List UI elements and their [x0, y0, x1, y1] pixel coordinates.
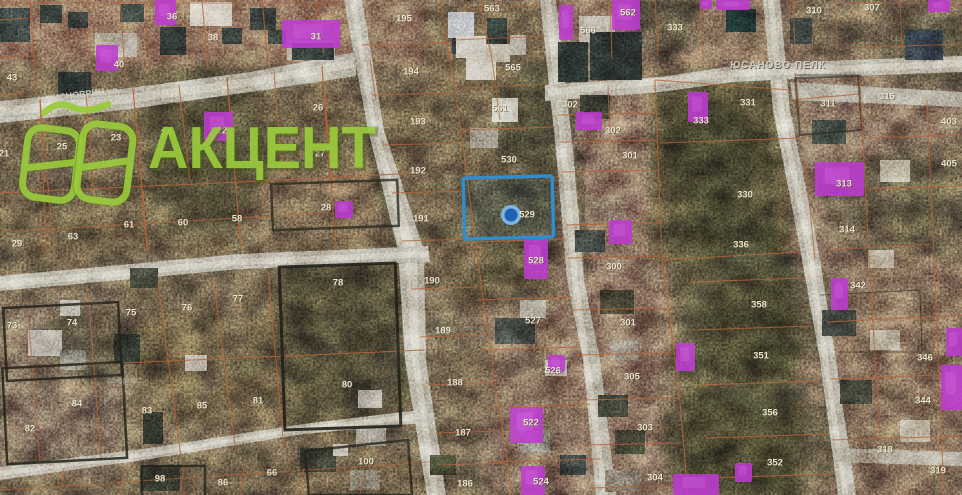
svg-text:333: 333	[693, 116, 709, 127]
svg-text:310: 310	[806, 6, 822, 17]
svg-text:76: 76	[182, 303, 193, 314]
svg-text:526: 526	[545, 366, 561, 377]
svg-text:305: 305	[624, 372, 641, 383]
svg-text:529: 529	[519, 210, 535, 221]
svg-text:315: 315	[879, 92, 896, 103]
svg-text:АКЦЕНТ: АКЦЕНТ	[148, 116, 376, 182]
svg-text:36: 36	[167, 12, 178, 23]
svg-text:524: 524	[533, 477, 550, 488]
svg-text:194: 194	[403, 67, 420, 78]
svg-text:31: 31	[311, 32, 322, 43]
svg-text:319: 319	[930, 466, 946, 477]
svg-text:565: 565	[505, 63, 522, 74]
svg-text:301: 301	[622, 151, 639, 162]
svg-text:80: 80	[342, 380, 353, 391]
svg-text:98: 98	[155, 474, 166, 485]
svg-text:346: 346	[917, 353, 933, 364]
svg-text:78: 78	[333, 278, 344, 289]
svg-text:23: 23	[111, 133, 122, 144]
svg-text:562: 562	[620, 8, 636, 19]
svg-text:331: 331	[740, 98, 757, 109]
svg-text:60: 60	[178, 218, 189, 229]
svg-text:58: 58	[232, 214, 243, 225]
svg-text:66: 66	[267, 468, 278, 479]
svg-text:303: 303	[637, 423, 653, 434]
svg-text:527: 527	[525, 316, 541, 327]
svg-text:84: 84	[72, 399, 83, 410]
svg-text:192: 192	[410, 166, 426, 177]
svg-text:344: 344	[915, 396, 932, 407]
svg-text:330: 330	[737, 190, 753, 201]
svg-text:191: 191	[413, 214, 430, 225]
svg-text:563: 563	[484, 4, 500, 15]
svg-text:302: 302	[605, 126, 621, 137]
svg-text:356: 356	[762, 408, 778, 419]
svg-text:86: 86	[218, 478, 229, 489]
svg-text:302: 302	[562, 100, 578, 111]
svg-text:26: 26	[313, 103, 324, 114]
svg-text:352: 352	[767, 458, 783, 469]
svg-text:38: 38	[208, 33, 219, 44]
svg-text:530: 530	[501, 155, 517, 166]
svg-text:28: 28	[321, 203, 332, 214]
svg-text:21: 21	[0, 149, 10, 160]
svg-text:403: 403	[941, 117, 957, 128]
svg-text:561: 561	[492, 104, 509, 115]
svg-text:195: 195	[396, 14, 413, 25]
svg-text:40: 40	[114, 60, 125, 71]
svg-text:190: 190	[424, 276, 440, 287]
svg-text:351: 351	[753, 351, 770, 362]
svg-text:73: 73	[7, 321, 18, 332]
svg-text:187: 187	[455, 428, 471, 439]
svg-text:336: 336	[733, 240, 749, 251]
svg-text:358: 358	[751, 300, 767, 311]
svg-text:342: 342	[850, 281, 866, 292]
svg-text:29: 29	[12, 239, 23, 250]
svg-text:193: 193	[410, 117, 426, 128]
svg-text:304: 304	[647, 473, 664, 484]
svg-text:528: 528	[528, 256, 544, 267]
svg-text:318: 318	[877, 445, 893, 456]
svg-text:61: 61	[124, 220, 135, 231]
svg-text:301: 301	[620, 318, 637, 329]
svg-text:186: 186	[457, 479, 473, 490]
svg-text:43: 43	[7, 73, 18, 84]
svg-text:ЮСАНОВО ПЕЛК: ЮСАНОВО ПЕЛК	[730, 60, 826, 71]
svg-text:82: 82	[25, 424, 36, 435]
svg-text:314: 314	[839, 225, 856, 236]
svg-text:63: 63	[68, 232, 79, 243]
svg-text:333: 333	[667, 23, 683, 34]
svg-text:566: 566	[580, 26, 596, 37]
svg-text:300: 300	[606, 262, 622, 273]
svg-text:307: 307	[864, 3, 880, 14]
svg-text:25: 25	[57, 142, 68, 153]
svg-text:81: 81	[253, 396, 264, 407]
svg-text:188: 188	[447, 378, 463, 389]
svg-text:311: 311	[820, 99, 836, 110]
svg-text:75: 75	[126, 308, 137, 319]
svg-text:405: 405	[941, 159, 958, 170]
svg-text:313: 313	[836, 179, 852, 190]
svg-text:100: 100	[358, 457, 374, 468]
